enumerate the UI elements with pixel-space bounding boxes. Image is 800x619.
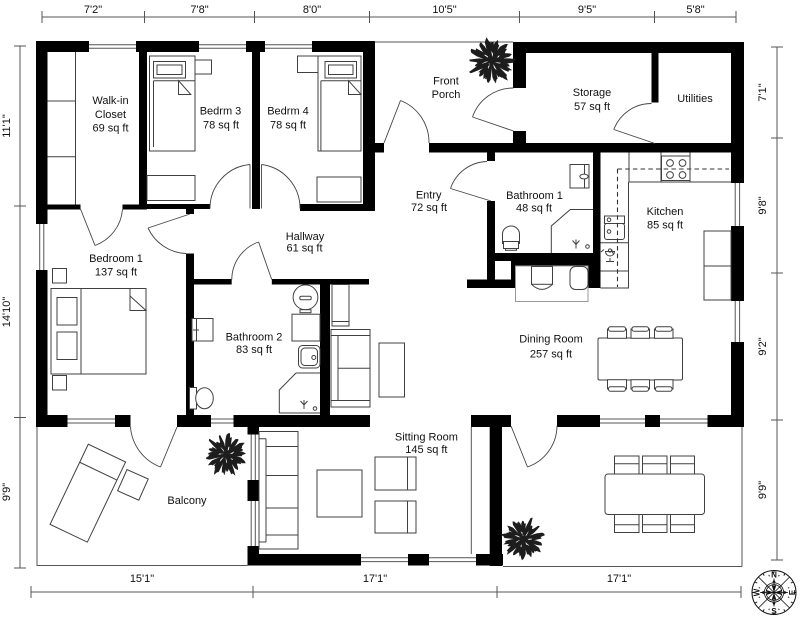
- svg-text:Porch: Porch: [432, 89, 461, 101]
- svg-text:7'8": 7'8": [190, 4, 208, 16]
- svg-text:69 sq ft: 69 sq ft: [92, 123, 128, 135]
- svg-text:Bathroom 1: Bathroom 1: [506, 190, 563, 202]
- svg-text:Kitchen: Kitchen: [647, 206, 684, 218]
- svg-text:9'9": 9'9": [757, 481, 769, 499]
- svg-text:9'5": 9'5": [578, 4, 596, 16]
- svg-text:78 sq ft: 78 sq ft: [203, 120, 239, 132]
- svg-text:83 sq ft: 83 sq ft: [236, 344, 272, 356]
- svg-text:N: N: [771, 571, 777, 580]
- svg-text:Balcony: Balcony: [167, 495, 207, 507]
- svg-text:E: E: [788, 589, 797, 595]
- svg-text:11'1": 11'1": [1, 114, 13, 138]
- svg-text:Bedrm 4: Bedrm 4: [267, 106, 309, 118]
- svg-text:Walk-in: Walk-in: [92, 95, 128, 107]
- svg-text:Bathroom 2: Bathroom 2: [226, 332, 283, 344]
- svg-text:Hallway: Hallway: [286, 231, 325, 243]
- svg-text:61 sq ft: 61 sq ft: [286, 243, 322, 255]
- svg-text:257 sq ft: 257 sq ft: [530, 349, 572, 361]
- svg-text:9'8": 9'8": [757, 196, 769, 214]
- svg-text:48 sq ft: 48 sq ft: [516, 203, 552, 215]
- svg-text:Storage: Storage: [573, 87, 612, 99]
- svg-text:Dining Room: Dining Room: [519, 334, 583, 346]
- svg-text:7'1": 7'1": [757, 83, 769, 101]
- svg-text:57 sq ft: 57 sq ft: [574, 101, 610, 113]
- svg-text:9'9": 9'9": [1, 483, 13, 501]
- svg-text:78 sq ft: 78 sq ft: [270, 120, 306, 132]
- svg-text:Front: Front: [433, 76, 459, 88]
- svg-text:85 sq ft: 85 sq ft: [647, 220, 683, 232]
- svg-text:72 sq ft: 72 sq ft: [411, 202, 447, 214]
- svg-text:Utilities: Utilities: [677, 93, 713, 105]
- svg-text:10'5": 10'5": [432, 4, 456, 16]
- svg-text:Sitting Room: Sitting Room: [395, 431, 458, 443]
- svg-text:W: W: [753, 588, 762, 596]
- svg-text:8'0": 8'0": [303, 4, 321, 16]
- svg-text:137 sq ft: 137 sq ft: [95, 266, 137, 278]
- svg-text:Bedrm 3: Bedrm 3: [200, 106, 242, 118]
- svg-text:9'2": 9'2": [757, 337, 769, 355]
- svg-text:17'1": 17'1": [363, 573, 387, 585]
- svg-text:15'1": 15'1": [130, 573, 154, 585]
- svg-text:Closet: Closet: [95, 109, 126, 121]
- svg-text:Entry: Entry: [416, 190, 442, 202]
- svg-text:145 sq ft: 145 sq ft: [405, 444, 447, 456]
- svg-text:Bedroom 1: Bedroom 1: [89, 253, 143, 265]
- svg-text:14'10": 14'10": [1, 297, 13, 328]
- svg-text:5'8": 5'8": [686, 4, 704, 16]
- svg-text:17'1": 17'1": [607, 573, 631, 585]
- svg-text:S: S: [771, 607, 777, 616]
- svg-text:7'2": 7'2": [84, 4, 102, 16]
